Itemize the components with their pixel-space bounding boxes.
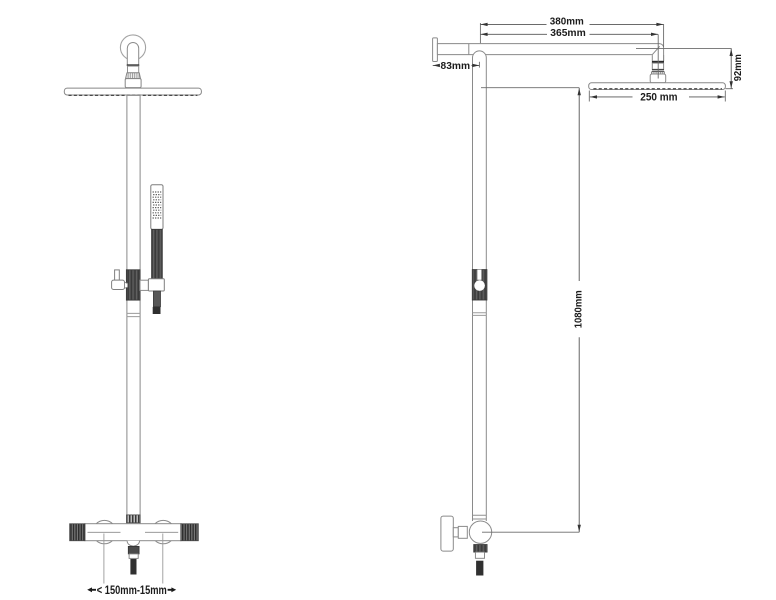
svg-text:< 150mm-15mm: < 150mm-15mm	[97, 585, 167, 597]
svg-text:92mm: 92mm	[733, 54, 744, 81]
svg-text:1080mm: 1080mm	[574, 290, 585, 328]
svg-text:380mm: 380mm	[550, 17, 584, 28]
svg-text:83mm: 83mm	[441, 60, 471, 72]
svg-text:365mm: 365mm	[550, 28, 586, 39]
svg-text:250 mm: 250 mm	[640, 91, 677, 103]
